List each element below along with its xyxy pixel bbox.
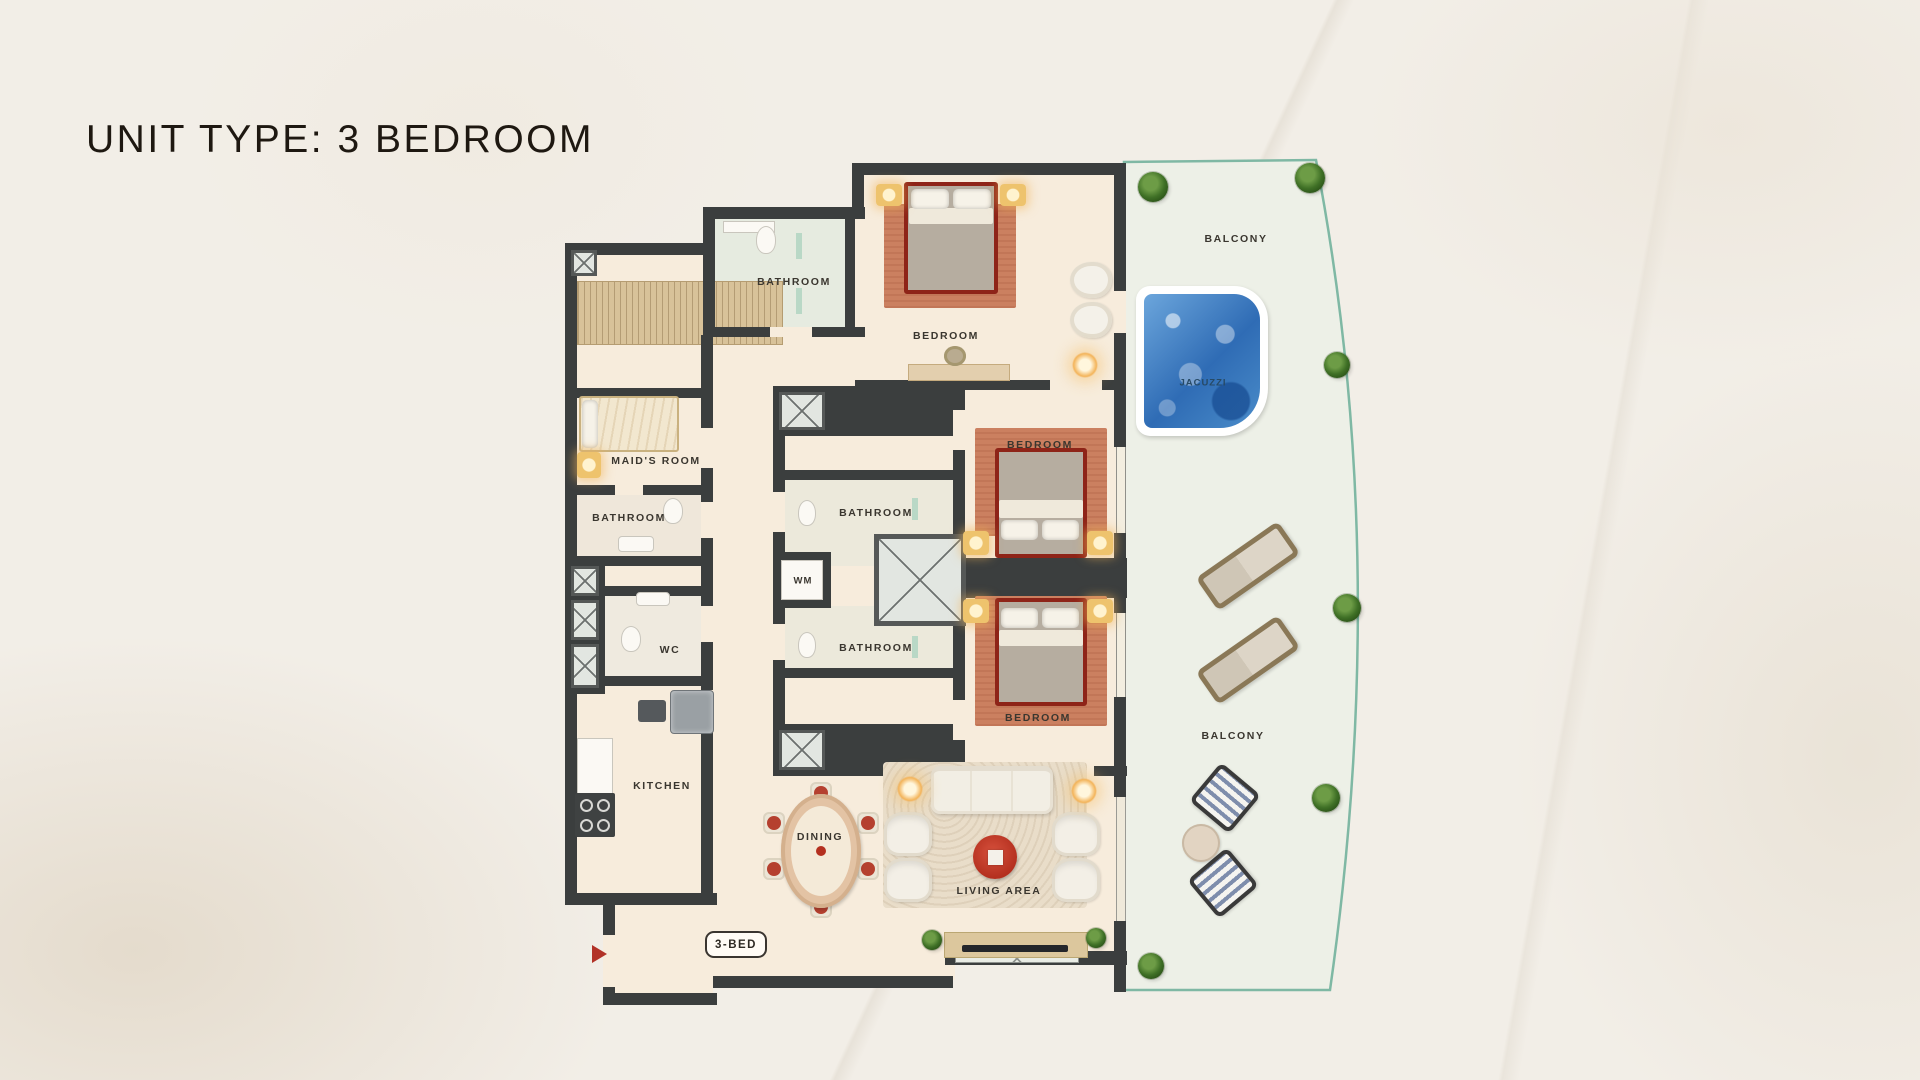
room-label-bedroom-top: BEDROOM	[913, 330, 979, 342]
toilet	[663, 498, 683, 524]
plant-icon	[922, 930, 942, 950]
wall	[565, 893, 717, 905]
ceiling-light-icon	[897, 776, 923, 802]
plant-icon	[1086, 928, 1106, 948]
door-gap	[953, 410, 965, 450]
ceiling-light-icon	[1071, 778, 1097, 804]
toilet	[798, 500, 816, 526]
lounge-chair	[1070, 302, 1112, 338]
room-label-balcony-low: BALCONY	[1201, 730, 1264, 742]
wall	[713, 976, 953, 988]
plant-icon	[1138, 953, 1164, 979]
wall	[601, 676, 705, 686]
shaft	[571, 644, 599, 688]
room-label-wm: WM	[794, 576, 813, 587]
wall	[1114, 163, 1126, 291]
desk-chair	[944, 346, 966, 366]
wall	[703, 207, 865, 219]
balcony-door-gap	[1114, 291, 1126, 333]
pillow	[1042, 608, 1079, 628]
door-gap	[770, 327, 812, 337]
unit-badge: 3-BED	[705, 931, 767, 958]
tv-screen	[962, 945, 1068, 952]
shaft	[571, 250, 597, 276]
room-label-dining: DINING	[797, 831, 843, 843]
room-label-bathroom-top: BATHROOM	[757, 276, 831, 288]
wall-lamp	[577, 452, 601, 478]
plant-icon	[1333, 594, 1361, 622]
room-label-bathroom-mid: BATHROOM	[839, 507, 913, 519]
room-label-living-area: LIVING AREA	[957, 885, 1042, 897]
door-gap	[1050, 380, 1102, 390]
wall	[1114, 333, 1126, 447]
jacuzzi-tub	[1136, 286, 1268, 436]
shaft	[779, 730, 825, 770]
room-label-balcony-top: BALCONY	[1204, 233, 1267, 245]
wall	[845, 215, 855, 335]
bedroom-top-desk	[908, 364, 1010, 381]
bed-sheet	[909, 208, 993, 224]
coffee-table-tray	[988, 850, 1003, 865]
nightstand-lamp	[876, 184, 902, 206]
refrigerator	[670, 690, 714, 734]
entry-floor	[605, 905, 713, 1003]
bed-sheet	[999, 500, 1083, 518]
armchair	[1052, 858, 1100, 902]
nightstand-lamp	[963, 531, 989, 555]
room-label-maids-room: MAID'S ROOM	[611, 455, 701, 467]
pillow	[1042, 520, 1079, 540]
room-label-jacuzzi: JACUZZI	[1179, 378, 1226, 389]
wall	[773, 470, 965, 480]
toilet	[798, 632, 816, 658]
pillow	[1001, 608, 1038, 628]
door-gap	[773, 624, 785, 660]
jacuzzi-water	[1144, 294, 1260, 428]
balcony-table	[1182, 824, 1220, 862]
sink	[618, 536, 654, 552]
door-gap	[701, 428, 713, 468]
toilet	[621, 626, 641, 652]
room-label-wc: WC	[660, 644, 681, 656]
kitchen-counter	[577, 738, 613, 794]
room-label-bedroom-low: BEDROOM	[1005, 712, 1071, 724]
stove	[575, 793, 615, 837]
balcony-sliding-door	[1116, 797, 1126, 921]
wall	[603, 993, 717, 1005]
bed-sheet	[999, 630, 1083, 646]
plant-icon	[1138, 172, 1168, 202]
shaft	[571, 566, 599, 596]
shower-glass	[796, 288, 802, 314]
elevator-shaft	[874, 534, 966, 626]
shaft	[779, 392, 825, 430]
pillow	[953, 189, 991, 209]
nightstand-lamp	[1087, 599, 1113, 623]
dining-chair	[857, 812, 879, 834]
sofa	[931, 766, 1053, 814]
nightstand-lamp	[1000, 184, 1026, 206]
sink	[636, 592, 670, 606]
lounge-chair	[1070, 262, 1112, 298]
window	[1116, 447, 1126, 533]
door-gap	[615, 485, 643, 495]
wall	[852, 163, 1126, 175]
pillow	[1001, 520, 1038, 540]
armchair	[1052, 812, 1100, 856]
wall	[773, 668, 965, 678]
unit-badge-label: 3-BED	[715, 939, 757, 951]
toilet	[756, 226, 776, 254]
window	[1116, 613, 1126, 697]
door-gap	[701, 502, 713, 538]
plant-icon	[1324, 352, 1350, 378]
ceiling-light-icon	[1072, 352, 1098, 378]
armchair	[884, 812, 932, 856]
nightstand-lamp	[963, 599, 989, 623]
shower-glass	[796, 233, 802, 259]
entrance-arrow-icon	[592, 945, 607, 963]
plant-icon	[1295, 163, 1325, 193]
armchair	[884, 858, 932, 902]
pillow	[911, 189, 949, 209]
room-label-kitchen: KITCHEN	[633, 780, 691, 792]
dining-chair	[763, 812, 785, 834]
pillow	[582, 400, 598, 448]
wall-structural-pier	[953, 558, 1127, 598]
shaft	[571, 600, 599, 640]
door-gap	[701, 606, 713, 642]
wc-floor	[601, 596, 703, 676]
wall	[1114, 697, 1126, 797]
door-gap	[773, 492, 785, 532]
kitchen-appliance	[638, 700, 666, 722]
table-decor	[816, 846, 826, 856]
wall	[703, 207, 715, 335]
room-label-bathroom-low: BATHROOM	[839, 642, 913, 654]
nightstand-lamp	[1087, 531, 1113, 555]
room-label-bedroom-mid: BEDROOM	[1007, 439, 1073, 451]
plant-icon	[1312, 784, 1340, 812]
door-gap	[953, 700, 965, 740]
room-label-bathroom-left: BATHROOM	[592, 512, 666, 524]
